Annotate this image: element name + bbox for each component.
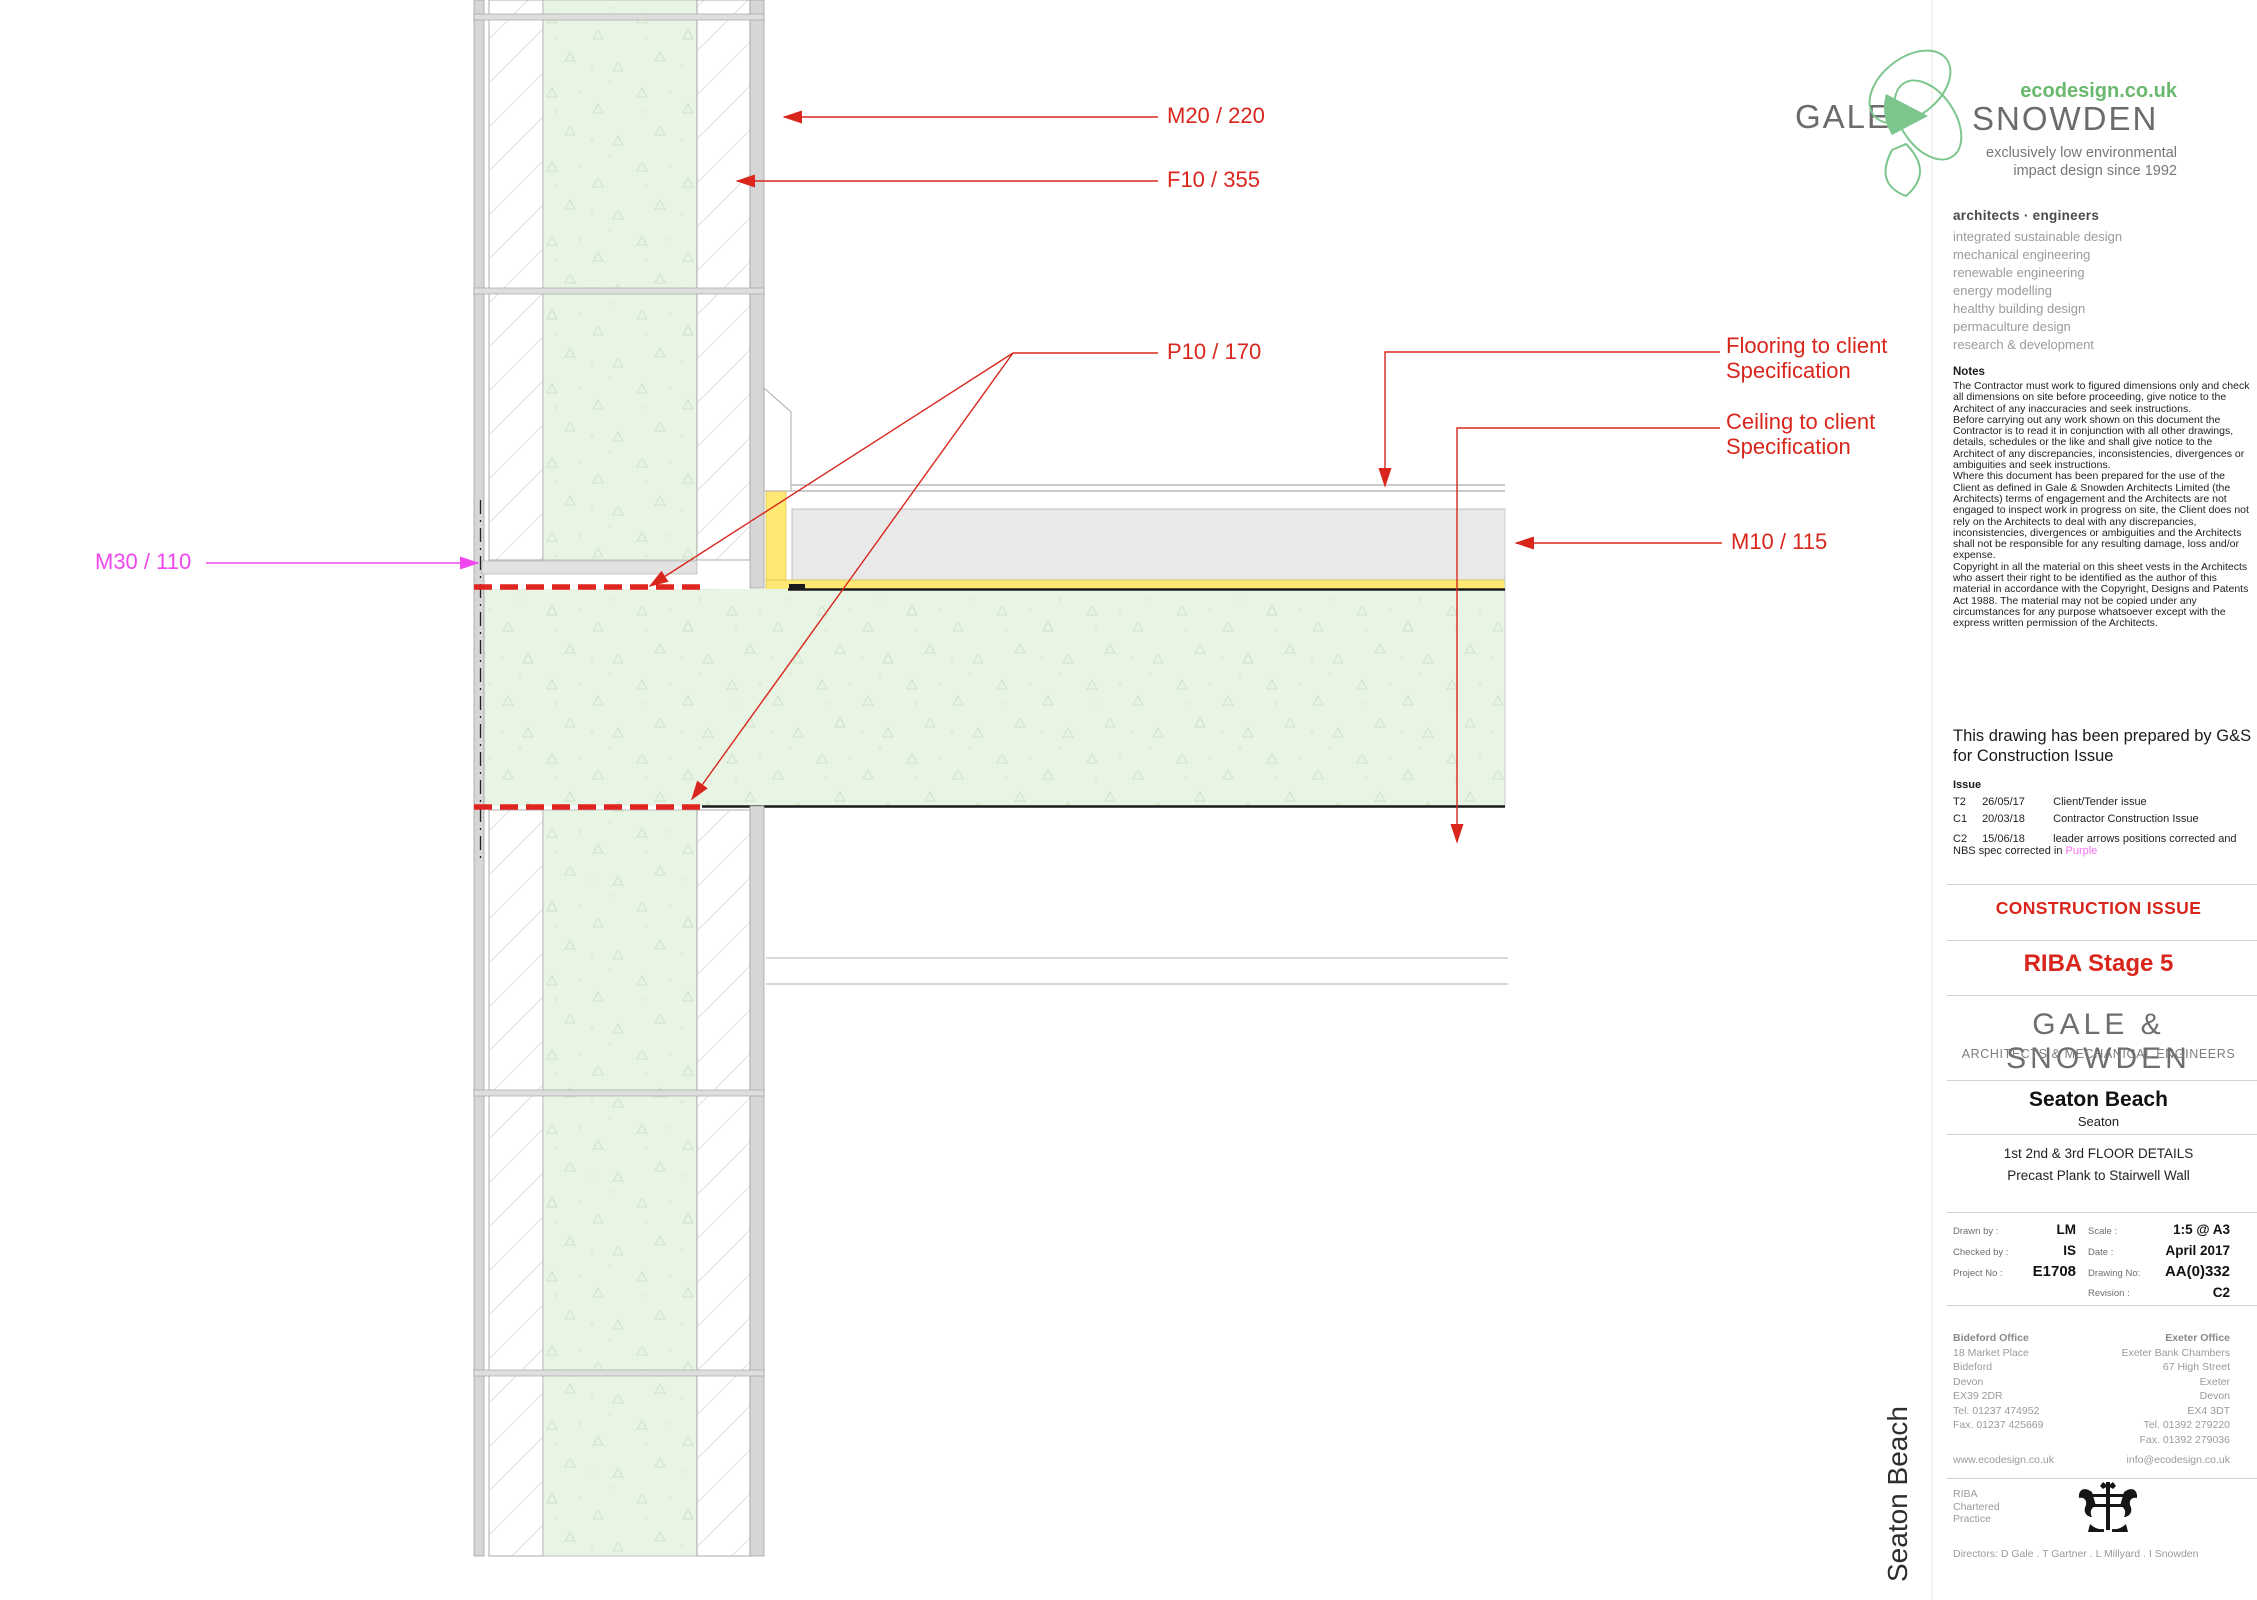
issue-code: C1 [1953, 813, 1979, 825]
office-address-line: Devon [2088, 1389, 2230, 1404]
titleblock-divider [1947, 1212, 2257, 1213]
drawing-title-line1: 1st 2nd & 3rd FLOOR DETAILS [1947, 1146, 2250, 1161]
titleblock-divider [1947, 940, 2257, 941]
project-location: Seaton [1947, 1114, 2250, 1129]
logo-tagline-2: impact design since 1992 [1967, 163, 2177, 179]
office-address-line: EX4 3DT [2088, 1404, 2230, 1419]
office-address-line: Devon [1953, 1375, 2093, 1390]
date-value: April 2017 [2130, 1243, 2230, 1258]
exeter-office-name: Exeter Office [2088, 1331, 2230, 1346]
notes-paragraph: The Contractor must work to figured dime… [1953, 381, 2253, 415]
revision-label: Revision : [2088, 1288, 2130, 1299]
riba-line: Practice [1953, 1513, 2000, 1526]
titleblock-divider [1947, 1478, 2257, 1479]
service-item: mechanical engineering [1953, 246, 2249, 264]
office-phone: Tel. 01392 279220 [2088, 1418, 2230, 1433]
scale-value: 1:5 @ A3 [2130, 1222, 2230, 1237]
office-address-line: EX39 2DR [1953, 1389, 2093, 1404]
construction-issue-stamp: CONSTRUCTION ISSUE [1947, 898, 2250, 919]
email-text: info@ecodesign.co.uk [2088, 1453, 2230, 1468]
riba-chartered-practice-text: RIBA Chartered Practice [1953, 1488, 2000, 1526]
issue-heading: Issue [1953, 779, 2249, 791]
services-list: integrated sustainable design mechanical… [1953, 228, 2249, 354]
office-phone: Tel. 01237 474952 [1953, 1404, 2093, 1419]
notes-paragraph: Where this document has been prepared fo… [1953, 471, 2253, 561]
riba-stage-stamp: RIBA Stage 5 [1947, 950, 2250, 978]
website-text: www.ecodesign.co.uk [1953, 1453, 2054, 1468]
annotation-ceiling-line2: Specification [1726, 435, 1875, 460]
drawn-by-label: Drawn by : [1953, 1226, 1998, 1237]
notes-heading: Notes [1953, 366, 2249, 378]
office-address-line: Exeter Bank Chambers [2088, 1346, 2230, 1361]
project-name: Seaton Beach [1947, 1088, 2250, 1112]
riba-line: RIBA [1953, 1488, 2000, 1501]
bideford-office-name: Bideford Office [1953, 1331, 2093, 1346]
drawn-by-value: LM [2000, 1222, 2076, 1237]
drawing-no-value: AA(0)332 [2130, 1263, 2230, 1280]
notes-body: The Contractor must work to figured dime… [1953, 381, 2253, 630]
service-item: renewable engineering [1953, 264, 2249, 282]
service-item: research & development [1953, 336, 2249, 354]
annotation-ceiling-line1: Ceiling to client [1726, 410, 1875, 435]
annotation-m30: M30 / 110 [95, 550, 191, 575]
service-item: healthy building design [1953, 300, 2249, 318]
checked-by-value: IS [2000, 1243, 2076, 1258]
issue-date: 20/03/18 [1982, 813, 2050, 825]
leaf-logo-icon [1848, 32, 1978, 197]
issue-desc-purple: Purple [2066, 845, 2098, 857]
issue-date: 15/06/18 [1982, 833, 2050, 845]
drawing-title-line2: Precast Plank to Stairwell Wall [1947, 1168, 2250, 1183]
directors-text: Directors: D Gale . T Gartner . L Millya… [1953, 1548, 2198, 1561]
titleblock-divider [1947, 995, 2257, 996]
notes-paragraph: Before carrying out any work shown on th… [1953, 415, 2253, 471]
riba-crest-icon [2078, 1480, 2138, 1534]
annotation-flooring-line1: Flooring to client [1726, 334, 1887, 359]
issue-date: 26/05/17 [1982, 796, 2050, 808]
issue-row: C1 20/03/18 Contractor Construction Issu… [1953, 813, 2199, 825]
issue-desc: Client/Tender issue [2053, 796, 2147, 808]
annotation-ceiling: Ceiling to client Specification [1726, 410, 1875, 459]
issue-row-continued: NBS spec corrected in Purple [1953, 845, 2097, 857]
annotation-flooring-line2: Specification [1726, 359, 1887, 384]
detail-drawing [0, 0, 2257, 1600]
office-address-line: 67 High Street [2088, 1360, 2230, 1375]
practice-name: GALE & SNOWDEN [1947, 1008, 2250, 1076]
service-item: energy modelling [1953, 282, 2249, 300]
office-address-line: 18 Market Place [1953, 1346, 2093, 1361]
office-address-line: Bideford [1953, 1360, 2093, 1375]
annotation-f10: F10 / 355 [1167, 168, 1260, 193]
drawing-sheet: M20 / 220 F10 / 355 P10 / 170 Flooring t… [0, 0, 2257, 1600]
logo-snowden-text: SNOWDEN [1972, 100, 2158, 138]
revision-value: C2 [2130, 1285, 2230, 1300]
practice-subtitle: ARCHITECTS & MECHANICAL ENGINEERS [1947, 1047, 2250, 1061]
issue-row: C2 15/06/18 leader arrows positions corr… [1953, 833, 2237, 845]
issue-code: T2 [1953, 796, 1979, 808]
issue-code: C2 [1953, 833, 1979, 845]
sheet-side-label: Seaton Beach [1882, 1406, 1914, 1582]
exeter-office-block: Exeter Office Exeter Bank Chambers 67 Hi… [2088, 1331, 2230, 1447]
scale-label: Scale : [2088, 1226, 2117, 1237]
prepared-statement: This drawing has been prepared by G&S fo… [1953, 727, 2253, 766]
office-fax: Fax. 01237 425669 [1953, 1418, 2093, 1433]
issue-row: T2 26/05/17 Client/Tender issue [1953, 796, 2147, 808]
annotation-p10: P10 / 170 [1167, 340, 1261, 365]
titleblock-divider [1947, 1134, 2257, 1135]
issue-desc: Contractor Construction Issue [2053, 813, 2199, 825]
project-no-value: E1708 [1990, 1263, 2076, 1280]
date-label: Date : [2088, 1247, 2113, 1258]
titleblock-divider [1947, 1305, 2257, 1306]
riba-line: Chartered [1953, 1501, 2000, 1514]
office-address-line: Exeter [2088, 1375, 2230, 1390]
annotation-m20: M20 / 220 [1167, 104, 1265, 129]
bideford-office-block: Bideford Office 18 Market Place Bideford… [1953, 1331, 2093, 1433]
notes-paragraph: Copyright in all the material on this sh… [1953, 562, 2253, 630]
services-heading: architects · engineers [1953, 208, 2249, 223]
annotation-m10: M10 / 115 [1731, 530, 1827, 555]
service-item: integrated sustainable design [1953, 228, 2249, 246]
titleblock-divider [1947, 1080, 2257, 1081]
issue-desc: leader arrows positions corrected and [2053, 833, 2236, 845]
logo-tagline-1: exclusively low environmental [1967, 145, 2177, 161]
office-fax: Fax. 01392 279036 [2088, 1433, 2230, 1448]
issue-desc: NBS spec corrected in [1953, 845, 2066, 857]
titleblock-divider [1947, 884, 2257, 885]
annotation-flooring: Flooring to client Specification [1726, 334, 1887, 383]
service-item: permaculture design [1953, 318, 2249, 336]
